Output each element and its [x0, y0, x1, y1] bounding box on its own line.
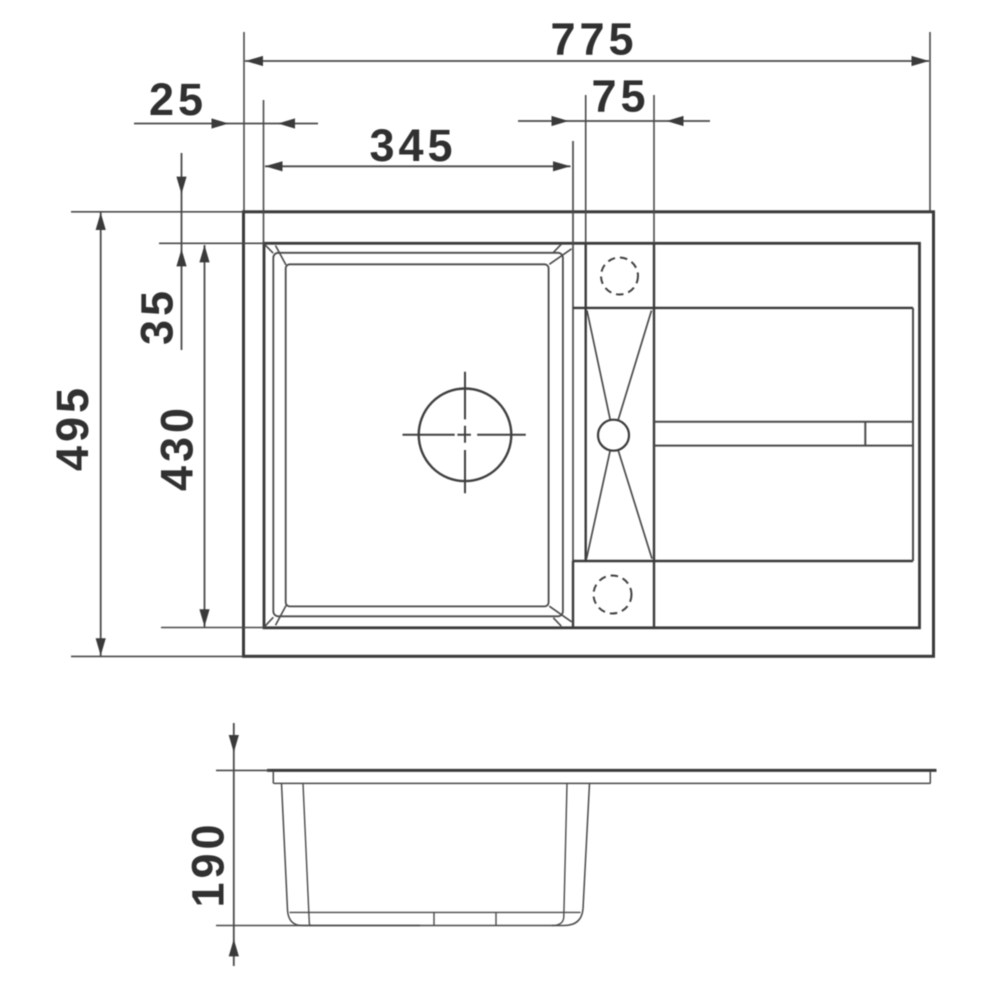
svg-text:35: 35	[132, 287, 183, 345]
svg-text:430: 430	[152, 404, 203, 491]
svg-text:190: 190	[183, 820, 234, 907]
svg-text:25: 25	[149, 74, 207, 125]
svg-text:345: 345	[369, 120, 456, 171]
svg-text:495: 495	[47, 384, 98, 471]
svg-text:75: 75	[591, 70, 649, 121]
svg-text:775: 775	[550, 13, 637, 64]
